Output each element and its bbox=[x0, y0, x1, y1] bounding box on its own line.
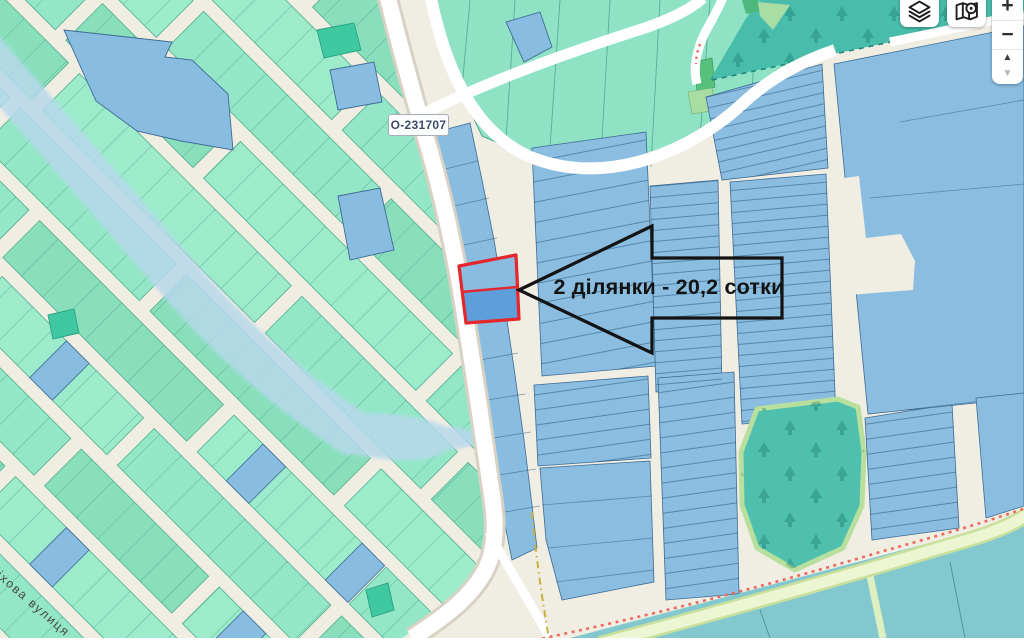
spinner-up-button[interactable]: ▲ bbox=[992, 50, 1023, 66]
zoom-control: + − ▲ ▼ bbox=[992, 0, 1023, 84]
field-strips-overlay bbox=[534, 376, 651, 466]
zoom-in-button[interactable]: + bbox=[992, 0, 1023, 20]
zoom-out-button[interactable]: − bbox=[992, 21, 1023, 49]
map-location-icon bbox=[955, 0, 979, 23]
field-strips-overlay bbox=[865, 404, 959, 540]
spinner-down-button[interactable]: ▼ bbox=[992, 66, 1023, 82]
map-viewport[interactable]: 2 ділянки - 20,2 сотки О-231707 оріхова … bbox=[0, 0, 1024, 638]
selected-parcel[interactable] bbox=[459, 255, 519, 323]
road-ref-label: О-231707 bbox=[388, 114, 449, 136]
annotation-label: 2 ділянки - 20,2 сотки bbox=[550, 275, 788, 300]
map-locate-button[interactable] bbox=[947, 0, 986, 27]
layers-button[interactable] bbox=[900, 0, 939, 27]
field-strips-overlay bbox=[658, 372, 739, 600]
map-canvas[interactable] bbox=[0, 0, 1024, 638]
layers-icon bbox=[908, 0, 931, 23]
